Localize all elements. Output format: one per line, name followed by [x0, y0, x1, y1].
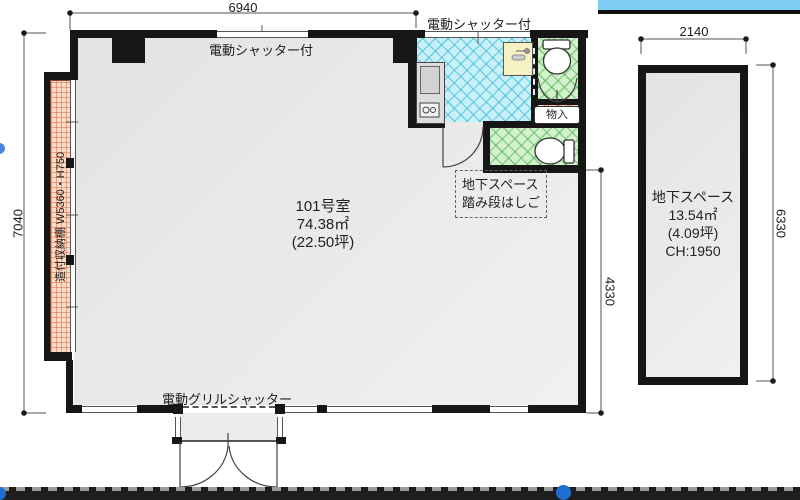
dimension-line-7040 — [24, 33, 46, 413]
dimension-label-7040: 7040 — [11, 196, 26, 252]
kitchen-sink — [420, 66, 440, 94]
dimension-line-6940 — [70, 13, 416, 30]
wall-segment — [66, 405, 82, 413]
wash-basin-cabinet — [503, 42, 533, 76]
shelf-label: 造付収納棚 W5360・H750 — [52, 142, 68, 292]
closet-label: 物入 — [546, 109, 568, 121]
shelf-face-line — [70, 80, 76, 352]
dimension-line-6330 — [756, 65, 773, 381]
dimension-label-4330: 4330 — [603, 264, 618, 320]
dimension-label-2140: 2140 — [644, 24, 744, 39]
closet-label-box: 物入 — [534, 106, 580, 124]
wall-segment — [531, 99, 586, 105]
window — [327, 406, 432, 413]
wall-segment — [317, 405, 327, 413]
bottom-bar-dashed-line — [0, 487, 800, 491]
wall-segment — [408, 30, 416, 128]
blue-handle[interactable] — [556, 485, 571, 500]
basement-note-line2: 踏み段はしご — [462, 194, 540, 212]
wall-segment — [638, 65, 748, 73]
basement-room-label: 地下スペース 13.54㎡ (4.09坪) CH:1950 — [633, 188, 753, 260]
main-room-name: 101号室 — [248, 198, 398, 216]
basement-note: 地下スペース 踏み段はしご — [462, 176, 540, 212]
grill-shutter-label: 電動グリルシャッター — [147, 389, 307, 408]
dimension-line-2140 — [641, 39, 746, 54]
dimension-label-6330: 6330 — [774, 196, 789, 252]
wall-segment — [638, 377, 748, 385]
shutter-label-wet: 電動シャッター付 — [399, 14, 559, 33]
main-room-area-tsubo: (22.50坪) — [248, 234, 398, 252]
toilet-room2-floor — [490, 128, 578, 166]
door-post — [172, 437, 182, 444]
entrance-door-arc-left — [180, 446, 228, 487]
wall-segment — [70, 30, 217, 38]
blue-handle[interactable] — [0, 143, 5, 154]
shutter-window-main — [217, 31, 308, 38]
door-sill-line — [180, 440, 278, 442]
main-room-label: 101号室 74.38㎡ (22.50坪) — [248, 198, 398, 252]
basement-room-name: 地下スペース — [633, 188, 753, 206]
window — [82, 406, 137, 413]
entrance-porch-floor — [180, 413, 277, 440]
entrance-door-arc-right — [229, 446, 277, 487]
wall-segment — [44, 72, 50, 360]
top-blue-bar-border — [598, 10, 800, 14]
top-blue-bar — [598, 0, 800, 10]
main-room-area-sqm: 74.38㎡ — [248, 216, 398, 234]
door-post — [276, 437, 286, 444]
wall-segment — [578, 30, 586, 413]
column-pier — [112, 38, 145, 63]
dimension-line-4330 — [586, 170, 601, 413]
basement-room-area-tsubo: (4.09坪) — [633, 224, 753, 242]
basement-room-area-sqm: 13.54㎡ — [633, 206, 753, 224]
opening-dashed-line — [533, 48, 535, 95]
floor-plan-canvas: 物入 — [0, 0, 800, 500]
dimension-label-6940: 6940 — [193, 0, 293, 15]
toilet-room-floor — [538, 37, 578, 100]
wall-segment — [432, 405, 490, 413]
shutter-label-main: 電動シャッター付 — [181, 40, 341, 59]
basement-room-ceiling: CH:1950 — [633, 242, 753, 260]
basement-note-line1: 地下スペース — [462, 176, 540, 194]
window — [490, 406, 528, 413]
